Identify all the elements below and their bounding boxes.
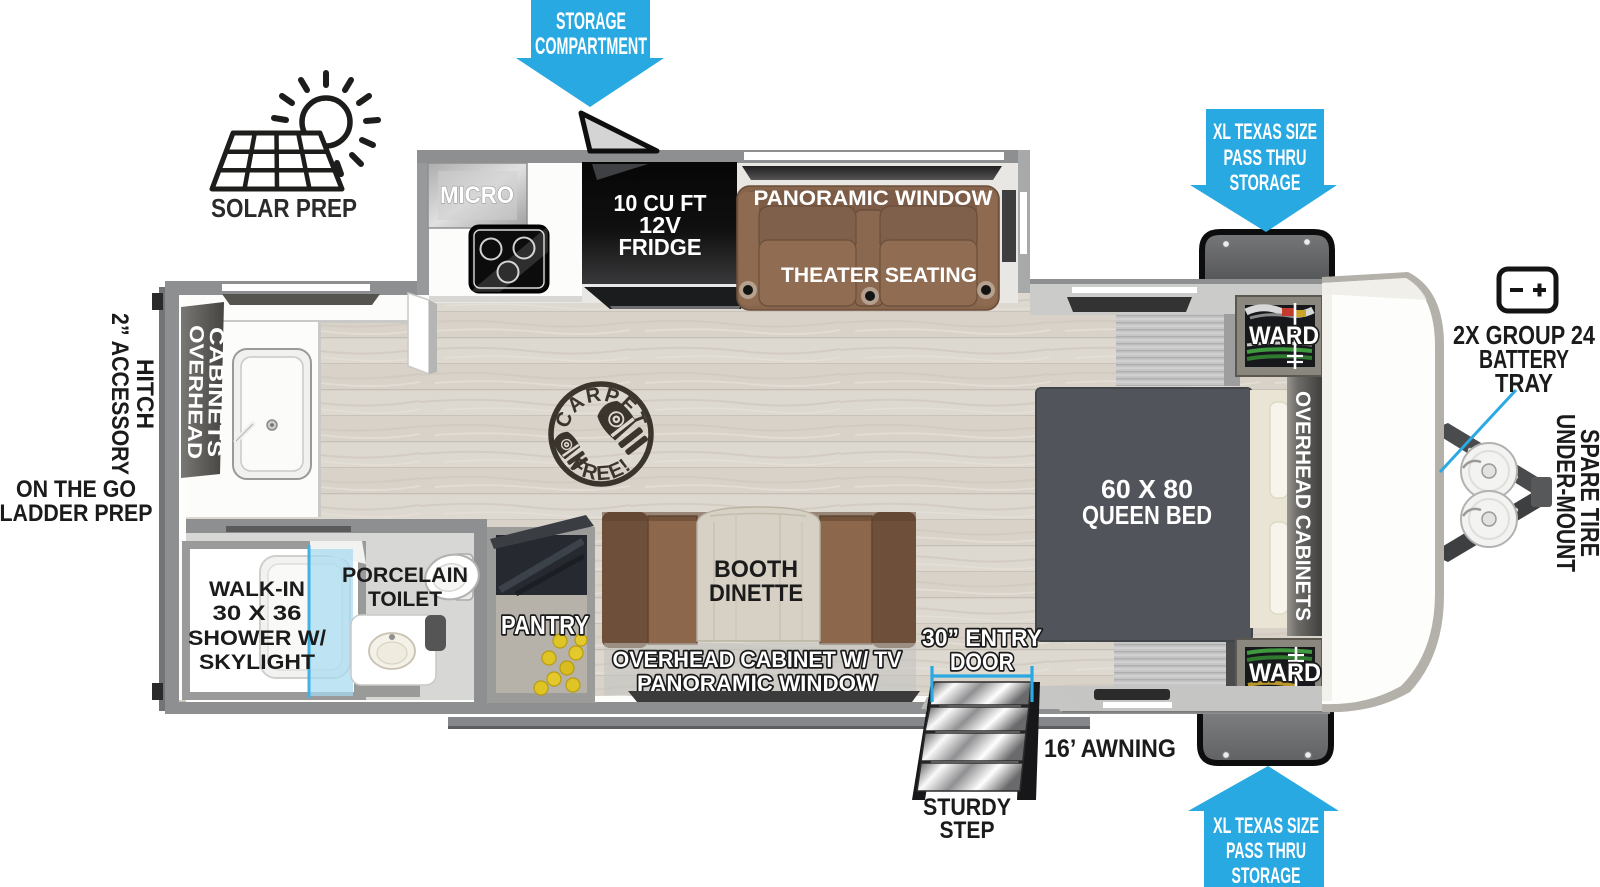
svg-text:DOOR: DOOR	[950, 649, 1014, 676]
svg-text:ON THE GO: ON THE GO	[16, 476, 136, 503]
svg-text:WARD: WARD	[1249, 659, 1321, 687]
svg-text:HITCH: HITCH	[131, 359, 158, 429]
svg-text:DINETTE: DINETTE	[709, 580, 803, 607]
svg-text:COMPARTMENT: COMPARTMENT	[535, 33, 647, 60]
svg-text:PANTRY: PANTRY	[501, 610, 589, 640]
svg-text:SOLAR PREP: SOLAR PREP	[211, 193, 357, 223]
svg-text:SPARE TIRE: SPARE TIRE	[1575, 429, 1600, 557]
svg-text:STORAGE: STORAGE	[1232, 863, 1301, 887]
svg-text:BOOTH: BOOTH	[714, 556, 798, 583]
svg-text:30 X 36: 30 X 36	[213, 602, 302, 625]
svg-text:STEP: STEP	[940, 817, 995, 844]
svg-text:FRIDGE: FRIDGE	[619, 234, 702, 260]
svg-text:PASS THRU: PASS THRU	[1226, 838, 1306, 863]
svg-text:PORCELAIN: PORCELAIN	[342, 564, 468, 587]
svg-text:XL TEXAS SIZE: XL TEXAS SIZE	[1213, 119, 1317, 144]
svg-text:OVERHEAD CABINETS: OVERHEAD CABINETS	[1291, 391, 1314, 621]
svg-text:STORAGE: STORAGE	[556, 8, 626, 35]
svg-text:XL TEXAS SIZE: XL TEXAS SIZE	[1213, 813, 1319, 838]
svg-text:CABINETS: CABINETS	[203, 327, 227, 457]
svg-text:LADDER PREP: LADDER PREP	[0, 500, 153, 527]
svg-text:MICRO: MICRO	[440, 182, 514, 209]
svg-text:TRAY: TRAY	[1495, 368, 1553, 398]
svg-text:PASS THRU: PASS THRU	[1224, 145, 1307, 170]
svg-text:STORAGE: STORAGE	[1230, 170, 1301, 195]
svg-text:16’ AWNING: 16’ AWNING	[1044, 735, 1176, 763]
svg-text:2” ACCESSORY: 2” ACCESSORY	[106, 313, 133, 475]
svg-text:SHOWER W/: SHOWER W/	[188, 627, 326, 650]
svg-text:OVERHEAD CABINET W/ TV: OVERHEAD CABINET W/ TV	[613, 647, 902, 672]
svg-text:THEATER SEATING: THEATER SEATING	[781, 264, 977, 287]
svg-text:QUEEN BED: QUEEN BED	[1082, 500, 1212, 530]
svg-text:PANORAMIC WINDOW: PANORAMIC WINDOW	[754, 187, 993, 210]
svg-text:WARD: WARD	[1249, 322, 1319, 350]
svg-text:30” ENTRY: 30” ENTRY	[922, 625, 1042, 652]
svg-text:SKYLIGHT: SKYLIGHT	[199, 651, 315, 674]
svg-text:WALK-IN: WALK-IN	[209, 578, 305, 601]
svg-text:TOILET: TOILET	[368, 588, 442, 611]
